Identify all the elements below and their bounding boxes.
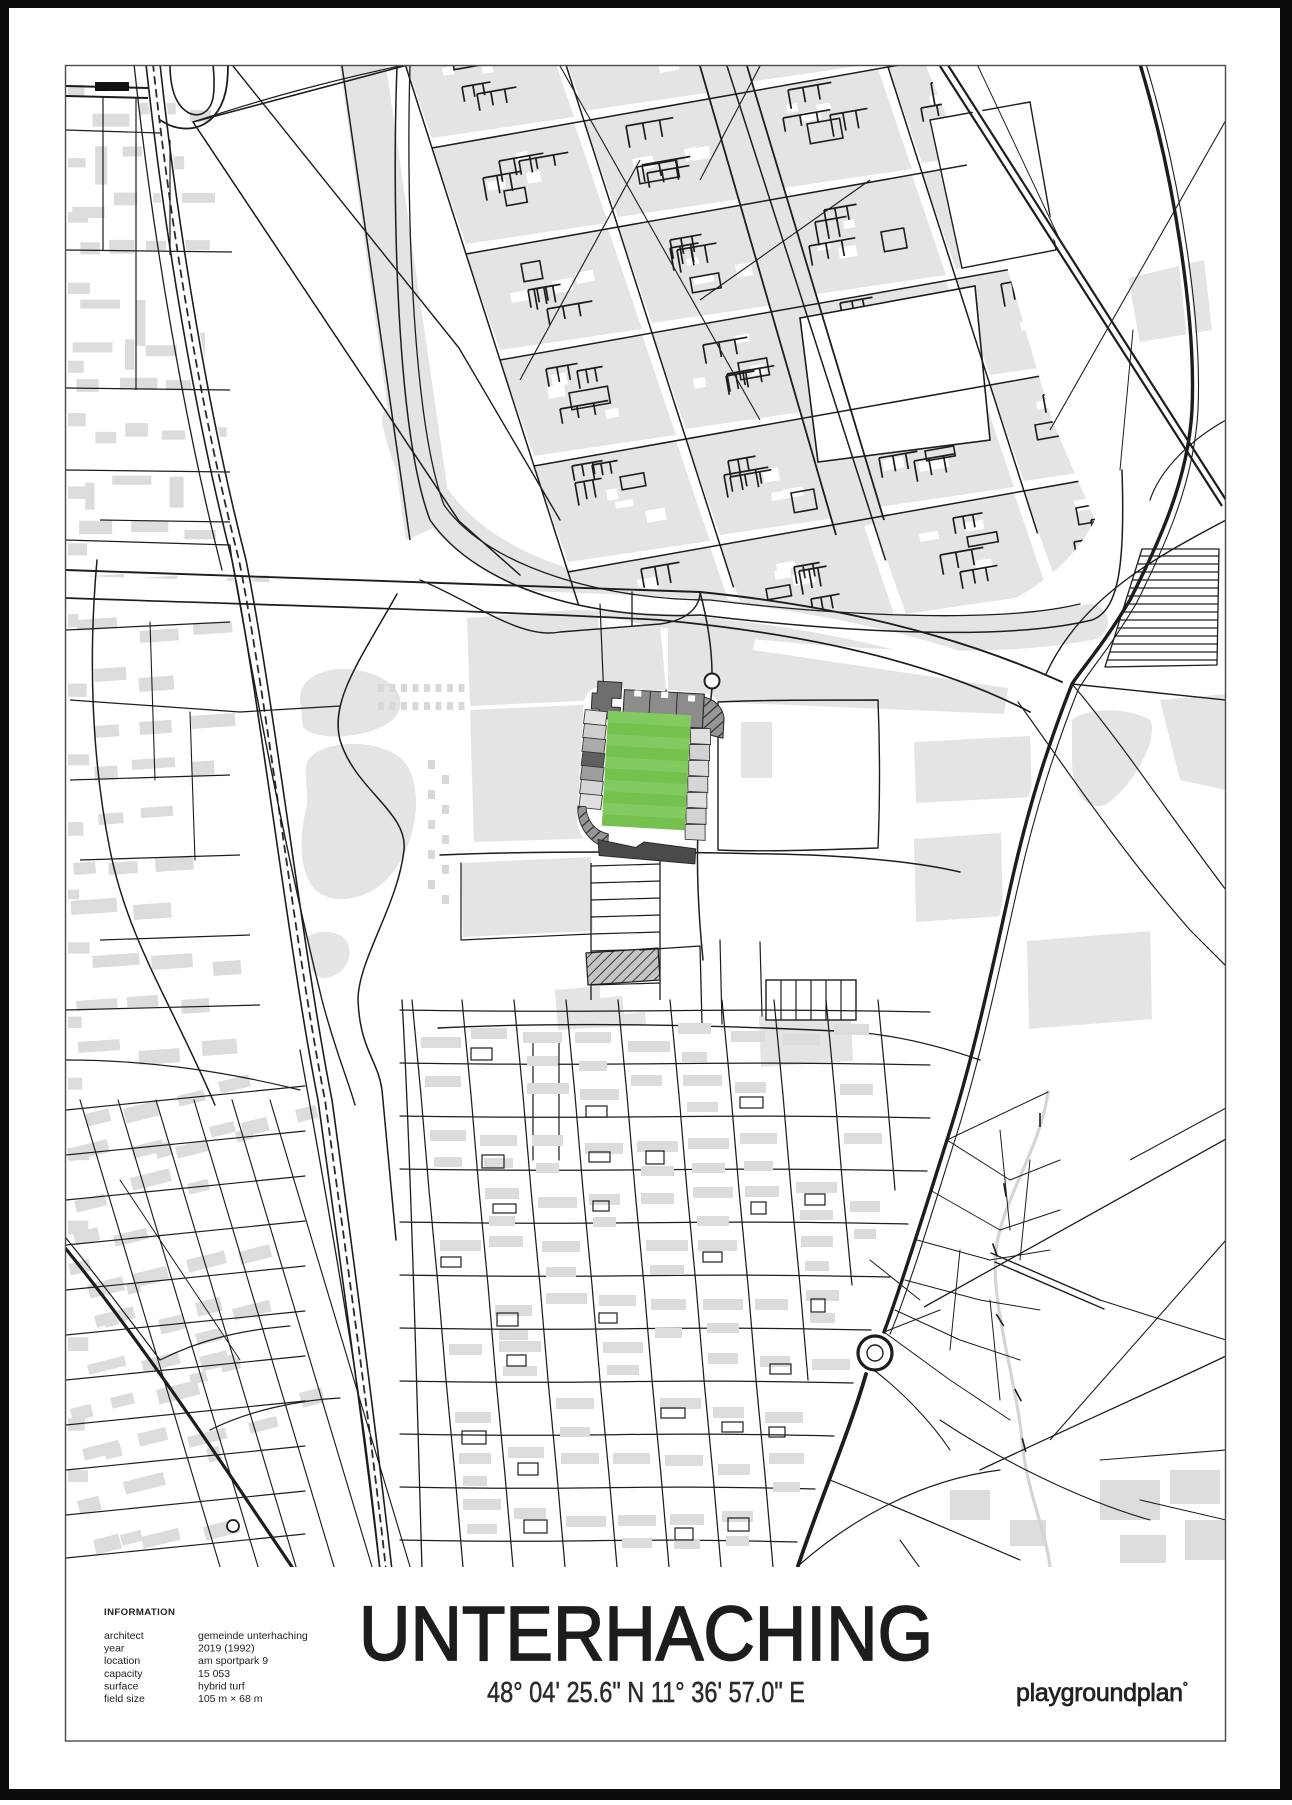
svg-text:105 m × 68 m: 105 m × 68 m — [198, 1693, 263, 1705]
svg-text:UNTERHACHING: UNTERHACHING — [359, 1591, 933, 1677]
svg-text:playgroundplan°: playgroundplan° — [1016, 1679, 1188, 1707]
svg-text:INFORMATION: INFORMATION — [104, 1607, 175, 1618]
svg-text:48° 04' 25.6" N 11° 36' 57.0": 48° 04' 25.6" N 11° 36' 57.0" E — [487, 1677, 805, 1709]
svg-text:architect: architect — [104, 1630, 144, 1642]
svg-text:capacity: capacity — [104, 1668, 143, 1680]
svg-text:am sportpark 9: am sportpark 9 — [198, 1655, 268, 1667]
svg-text:15 053: 15 053 — [198, 1668, 230, 1680]
svg-text:field size: field size — [104, 1693, 145, 1705]
svg-text:location: location — [104, 1655, 140, 1667]
svg-text:surface: surface — [104, 1680, 139, 1692]
svg-text:hybrid turf: hybrid turf — [198, 1680, 245, 1692]
svg-text:year: year — [104, 1643, 125, 1655]
svg-text:2019 (1992): 2019 (1992) — [198, 1643, 255, 1655]
svg-text:gemeinde unterhaching: gemeinde unterhaching — [198, 1630, 308, 1642]
